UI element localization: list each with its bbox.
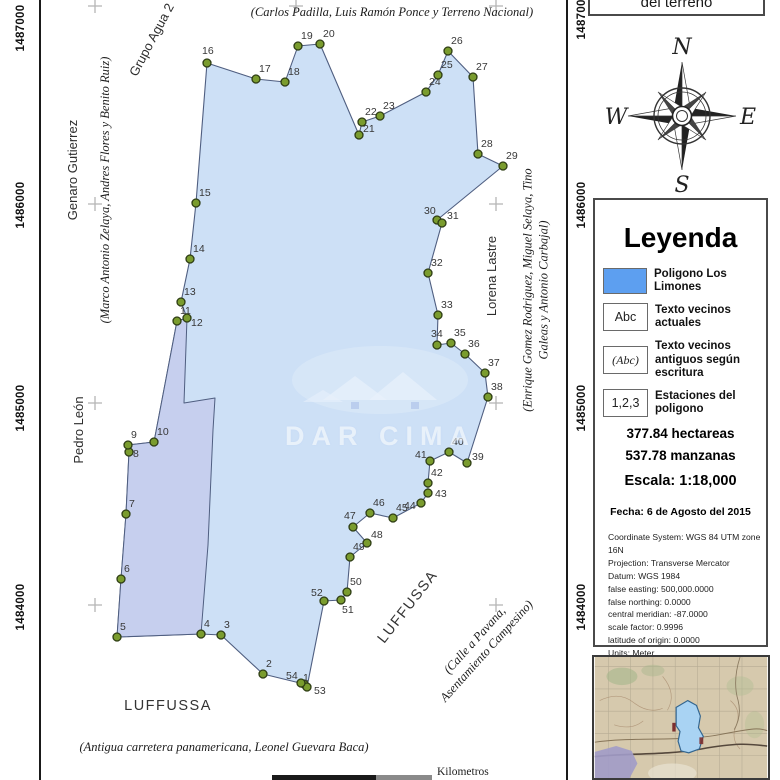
grid-cross [289, 0, 303, 13]
vertex-dot-28 [474, 150, 482, 158]
vertex-dot-22 [358, 118, 366, 126]
vertex-label-20: 20 [323, 28, 335, 40]
vertex-dot-10 [150, 438, 158, 446]
map-scale: Escala: 1:18,000 [595, 473, 766, 489]
crs-line: latitude of origin: 0.0000 [608, 634, 766, 647]
map-title-partial: del terreno [641, 0, 713, 11]
vertex-label-30: 30 [424, 205, 436, 217]
vertex-label-48: 48 [371, 529, 383, 541]
compass-north-label: N [671, 35, 692, 60]
vertex-label-32: 32 [431, 257, 443, 269]
legend-item-estaciones: 1,2,3 Estaciones del poligono [603, 389, 760, 417]
vertex-dot-2 [259, 670, 267, 678]
vertex-label-17: 17 [259, 63, 271, 75]
vertex-label-9: 9 [131, 429, 137, 441]
scale-bar [272, 775, 376, 780]
vertex-dot-11 [173, 317, 181, 325]
compass-star [628, 62, 736, 170]
vertex-dot-16 [203, 59, 211, 67]
crs-line: central meridian: -87.0000 [608, 608, 766, 621]
vertex-label-4: 4 [204, 618, 210, 630]
grid-cross [88, 598, 102, 612]
vertex-dot-14 [186, 255, 194, 263]
vertex-label-2: 2 [266, 658, 272, 670]
legend-item-polygon: Poligono Los Limones [603, 268, 760, 294]
vertex-label-35: 35 [454, 327, 466, 339]
vertex-dot-12 [183, 314, 191, 322]
vertex-label-52: 52 [311, 587, 323, 599]
vertex-label-5: 5 [120, 621, 126, 633]
grid-cross [489, 598, 503, 612]
legend-item-label: Texto vecinos antiguos según escritura [655, 340, 760, 380]
vertex-label-51: 51 [342, 604, 354, 616]
vertex-label-7: 7 [129, 498, 135, 510]
grid-cross [88, 0, 102, 13]
vertex-dot-24 [422, 88, 430, 96]
vertex-dot-46 [366, 509, 374, 517]
vertex-label-19: 19 [301, 30, 313, 42]
inset-map [592, 655, 770, 780]
vertex-dot-29 [499, 162, 507, 170]
vertex-dot-41 [426, 457, 434, 465]
map-date: Fecha: 6 de Agosto del 2015 [595, 506, 766, 518]
vertex-label-37: 37 [488, 357, 500, 369]
legend-title: Leyenda [595, 222, 766, 254]
vertex-dot-42 [424, 479, 432, 487]
compass-rose: N S W E [600, 26, 764, 202]
legend-swatch-polygon [603, 268, 647, 294]
vertex-label-22: 22 [365, 106, 377, 118]
vertex-label-10: 10 [157, 426, 169, 438]
crs-line: Coordinate System: WGS 84 UTM zone 16N [608, 531, 766, 557]
vertex-label-50: 50 [350, 576, 362, 588]
vertex-label-46: 46 [373, 497, 385, 509]
vertex-dot-9 [124, 441, 132, 449]
vertex-label-31: 31 [447, 210, 459, 222]
vertex-dot-20 [316, 40, 324, 48]
vertex-label-15: 15 [199, 187, 211, 199]
vertex-label-6: 6 [124, 563, 130, 575]
vertex-label-3: 3 [224, 619, 230, 631]
grid-cross [88, 396, 102, 410]
vertex-dot-23 [376, 112, 384, 120]
vertex-dot-39 [463, 459, 471, 467]
vertex-label-40: 40 [452, 436, 464, 448]
vertex-label-38: 38 [491, 381, 503, 393]
vertex-label-53: 53 [314, 685, 326, 697]
crs-info: Coordinate System: WGS 84 UTM zone 16N P… [608, 531, 766, 660]
vertex-label-36: 36 [468, 338, 480, 350]
vertex-dot-37 [481, 369, 489, 377]
vertex-dot-27 [469, 73, 477, 81]
vertex-dot-25 [434, 71, 442, 79]
legend-item-label: Poligono Los Limones [654, 268, 760, 294]
vertex-dot-49 [346, 553, 354, 561]
vertex-dot-45 [389, 514, 397, 522]
vertex-label-33: 33 [441, 299, 453, 311]
vertex-dot-40 [445, 448, 453, 456]
legend-item-vecinos-actuales: Abc Texto vecinos actuales [603, 303, 760, 331]
vertex-label-8: 8 [133, 448, 139, 460]
legend-swatch-abc: Abc [603, 303, 648, 331]
vertex-dot-19 [294, 42, 302, 50]
crs-line: Datum: WGS 1984 [608, 570, 766, 583]
crs-line: false easting: 500,000.0000 [608, 583, 766, 596]
vertex-dot-44 [417, 499, 425, 507]
legend-panel: Leyenda Poligono Los Limones Abc Texto v… [593, 198, 768, 647]
vertex-dot-6 [117, 575, 125, 583]
compass-south-label: S [674, 173, 689, 198]
compass-west-label: W [605, 105, 630, 130]
legend-item-label: Estaciones del poligono [655, 390, 760, 416]
vertex-dot-4 [197, 630, 205, 638]
vertex-dot-15 [192, 199, 200, 207]
vertex-label-12: 12 [191, 317, 203, 329]
vertex-dot-21 [355, 131, 363, 139]
vertex-label-43: 43 [435, 488, 447, 500]
vertex-label-47: 47 [344, 510, 356, 522]
grid-cross [489, 197, 503, 211]
crs-line: scale factor: 0.9996 [608, 621, 766, 634]
vertex-label-39: 39 [472, 451, 484, 463]
vertex-label-45: 45 [396, 502, 408, 514]
vertex-dot-33 [434, 311, 442, 319]
vertex-dot-54 [297, 679, 305, 687]
vertex-dot-51 [337, 596, 345, 604]
vertex-dot-38 [484, 393, 492, 401]
area-hectareas: 377.84 hectareas [595, 426, 766, 441]
area-manzanas: 537.78 manzanas [595, 448, 766, 463]
vertex-dot-36 [461, 350, 469, 358]
crs-line: false northing: 0.0000 [608, 596, 766, 609]
vertex-label-28: 28 [481, 138, 493, 150]
vertex-label-41: 41 [415, 449, 427, 461]
vertex-dot-32 [424, 269, 432, 277]
grid-cross [88, 197, 102, 211]
vertex-dot-3 [217, 631, 225, 639]
vertex-dot-13 [177, 298, 185, 306]
vertex-label-14: 14 [193, 243, 205, 255]
vertex-label-16: 16 [202, 45, 214, 57]
vertex-dot-7 [122, 510, 130, 518]
legend-item-vecinos-antiguos: (Abc) Texto vecinos antiguos según escri… [603, 340, 760, 380]
vertex-dot-34 [433, 341, 441, 349]
vertex-dot-5 [113, 633, 121, 641]
vertex-dot-50 [343, 588, 351, 596]
vertex-dot-26 [444, 47, 452, 55]
vertex-label-26: 26 [451, 35, 463, 47]
vertex-label-25: 25 [441, 59, 453, 71]
vertex-dot-31 [438, 219, 446, 227]
crs-line: Projection: Transverse Mercator [608, 557, 766, 570]
scale-bar-segment [376, 775, 432, 780]
scale-bar-label: Kilometros [437, 766, 489, 778]
legend-swatch-123: 1,2,3 [603, 389, 648, 417]
vertex-label-13: 13 [184, 286, 196, 298]
compass-east-label: E [739, 105, 756, 130]
vertex-label-29: 29 [506, 150, 518, 162]
vertex-label-54: 54 [286, 670, 298, 682]
map-title-box: del terreno [588, 0, 765, 16]
vertex-label-23: 23 [383, 100, 395, 112]
vertex-dot-17 [252, 75, 260, 83]
vertex-dot-18 [281, 78, 289, 86]
vertex-label-42: 42 [431, 467, 443, 479]
vertex-label-18: 18 [288, 66, 300, 78]
vertex-dot-47 [349, 523, 357, 531]
vertex-dot-43 [424, 489, 432, 497]
vertex-label-49: 49 [353, 541, 365, 553]
vertex-label-27: 27 [476, 61, 488, 73]
legend-swatch-abc-italic: (Abc) [603, 346, 648, 374]
inset-urban-area [595, 746, 638, 778]
legend-item-label: Texto vecinos actuales [655, 304, 760, 330]
grid-cross [489, 0, 503, 13]
vertex-label-34: 34 [431, 328, 443, 340]
vertex-dot-35 [447, 339, 455, 347]
